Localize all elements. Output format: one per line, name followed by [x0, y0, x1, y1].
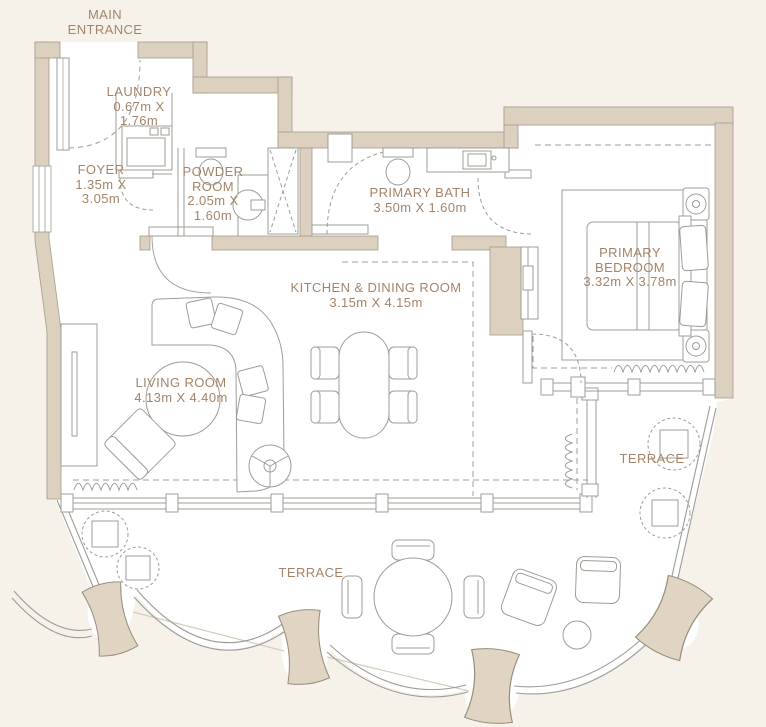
pillow	[679, 281, 708, 327]
nightstand	[683, 188, 709, 220]
room-label-foyer: FOYER 1.35m X 3.05m	[75, 163, 126, 207]
label-line: 1.35m X	[75, 178, 126, 193]
label-line: KITCHEN & DINING ROOM	[291, 281, 462, 296]
label-line: LIVING ROOM	[134, 376, 227, 391]
label-line: BEDROOM	[583, 261, 676, 276]
label-line: 2.05m X	[183, 194, 244, 209]
dining-chair	[389, 347, 417, 379]
room-label-living-room: LIVING ROOM 4.13m X 4.40m	[134, 376, 227, 405]
room-label-terrace-bottom: TERRACE	[279, 566, 344, 581]
label-line: 3.15m X 4.15m	[291, 296, 462, 311]
label-line: 3.32m X 3.78m	[583, 275, 676, 290]
label-line: POWDER	[183, 165, 244, 180]
label-line: LAUNDRY	[107, 85, 172, 100]
tv-console	[61, 324, 97, 466]
room-label-laundry: LAUNDRY 0.67m X 1.76m	[107, 85, 172, 129]
terrace-chair	[392, 540, 434, 560]
room-label-main-entrance: MAIN ENTRANCE	[68, 8, 143, 37]
terrace-chair	[342, 576, 362, 618]
label-line: PRIMARY	[583, 246, 676, 261]
label-line: TERRACE	[620, 452, 685, 467]
label-line: 1.60m	[183, 209, 244, 224]
shower-niche	[328, 134, 352, 162]
dining-chair	[311, 391, 339, 423]
side-table	[249, 445, 291, 487]
kitchen-cabinet-run	[521, 247, 538, 319]
label-line: 3.05m	[75, 192, 126, 207]
label-line: 4.13m X 4.40m	[134, 391, 227, 406]
terrace-chair	[392, 634, 434, 654]
room-label-powder-room: POWDER ROOM 2.05m X 1.60m	[183, 165, 244, 223]
label-line: 1.76m	[107, 114, 172, 129]
label-line: ROOM	[183, 180, 244, 195]
vanity-sink	[427, 148, 509, 172]
terrace-chair	[464, 576, 484, 618]
dining-chair	[311, 347, 339, 379]
dining-chair	[389, 391, 417, 423]
closet-wardrobe	[268, 148, 298, 234]
label-line: TERRACE	[279, 566, 344, 581]
pillow	[679, 225, 708, 271]
label-line: PRIMARY BATH	[370, 186, 471, 201]
room-label-primary-bedroom: PRIMARY BEDROOM 3.32m X 3.78m	[583, 246, 676, 290]
terrace-round-table	[374, 558, 452, 636]
label-line: 3.50m X 1.60m	[370, 201, 471, 216]
dining-table	[339, 332, 389, 438]
washer-dryer	[122, 126, 172, 170]
room-label-terrace-right: TERRACE	[620, 452, 685, 467]
room-label-primary-bath: PRIMARY BATH 3.50m X 1.60m	[370, 186, 471, 215]
label-line: ENTRANCE	[68, 23, 143, 38]
label-line: FOYER	[75, 163, 126, 178]
floor-plan: MAIN ENTRANCE LAUNDRY 0.67m X 1.76m FOYE…	[0, 0, 766, 727]
terrace-side-table	[563, 621, 591, 649]
lounge-chair	[575, 556, 621, 604]
room-label-kitchen-dining: KITCHEN & DINING ROOM 3.15m X 4.15m	[291, 281, 462, 310]
label-line: 0.67m X	[107, 100, 172, 115]
label-line: MAIN	[68, 8, 143, 23]
foyer-window	[33, 166, 51, 232]
